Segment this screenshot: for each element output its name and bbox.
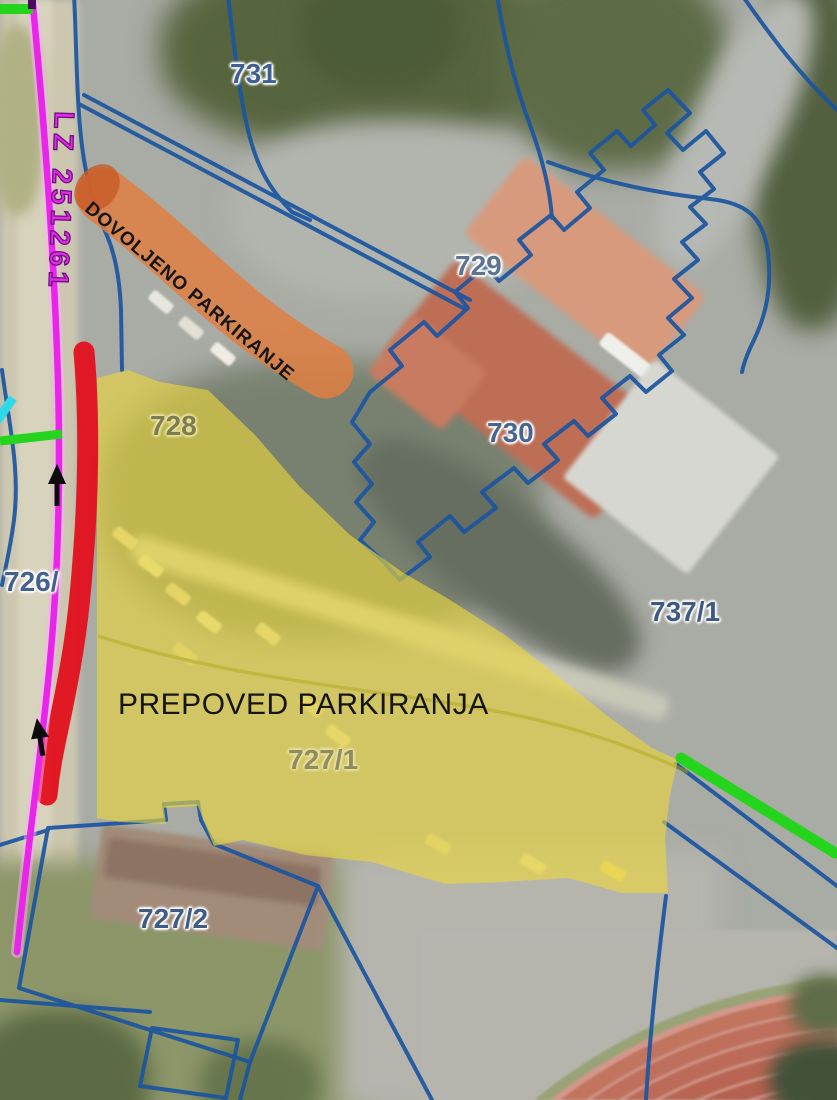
no-parking-zone-label: PREPOVED PARKIRANJA [118, 688, 489, 722]
parcel-label-727-1: 727/1 [288, 744, 358, 776]
parcel-label-728: 728 [150, 410, 197, 442]
parcel-label-737-1: 737/1 [650, 596, 720, 628]
parcel-label-726: 726/ [4, 566, 59, 598]
road-code-label: LZ 251261 [42, 111, 80, 292]
map-labels-layer: 731 729 728 730 737/1 726/ 727/1 727/2 D… [0, 0, 837, 1100]
parcel-label-730: 730 [487, 417, 534, 449]
allowed-parking-zone-label: DOVOLJENO PARKIRANJE [80, 198, 298, 386]
parcel-label-731: 731 [230, 58, 277, 90]
parcel-label-727-2: 727/2 [138, 903, 208, 935]
parcel-label-729: 729 [455, 250, 502, 282]
aerial-map: 731 729 728 730 737/1 726/ 727/1 727/2 D… [0, 0, 837, 1100]
